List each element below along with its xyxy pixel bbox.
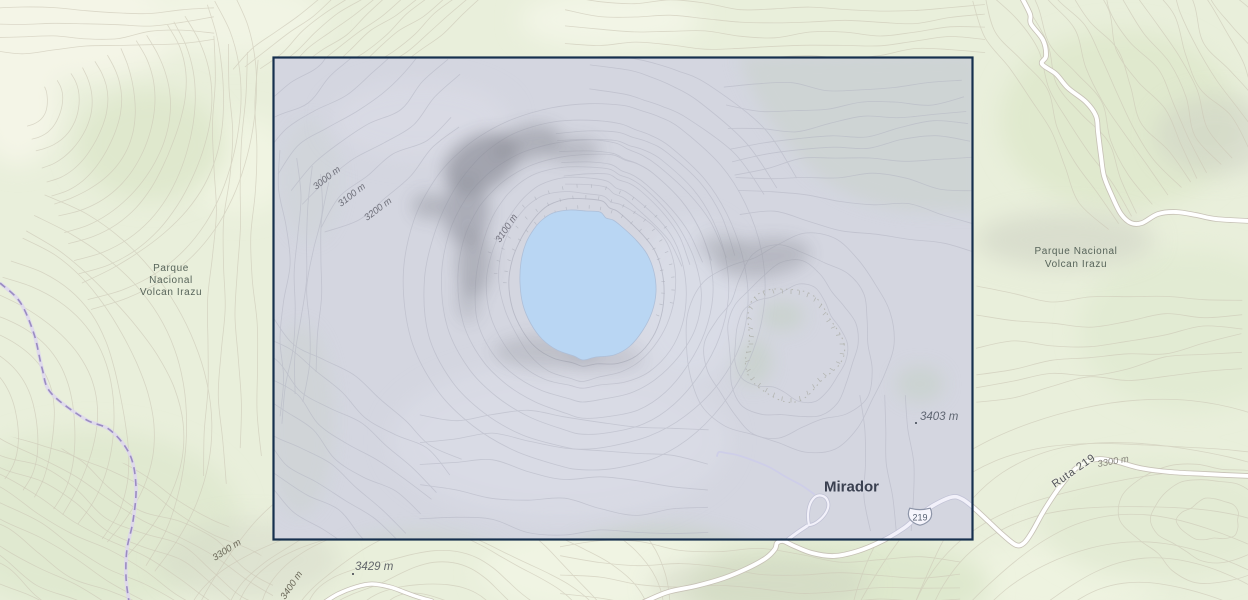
svg-text:219: 219: [912, 513, 927, 523]
svg-text:Mirador: Mirador: [824, 479, 879, 496]
svg-text:3403 m: 3403 m: [920, 411, 959, 423]
svg-text:Volcan Irazu: Volcan Irazu: [1045, 259, 1107, 270]
svg-text:Nacional: Nacional: [149, 275, 193, 286]
svg-text:Volcan Irazu: Volcan Irazu: [140, 287, 202, 298]
svg-text:Parque Nacional: Parque Nacional: [1035, 246, 1118, 257]
svg-text:3429 m: 3429 m: [355, 561, 394, 573]
svg-text:Parque: Parque: [153, 263, 189, 274]
